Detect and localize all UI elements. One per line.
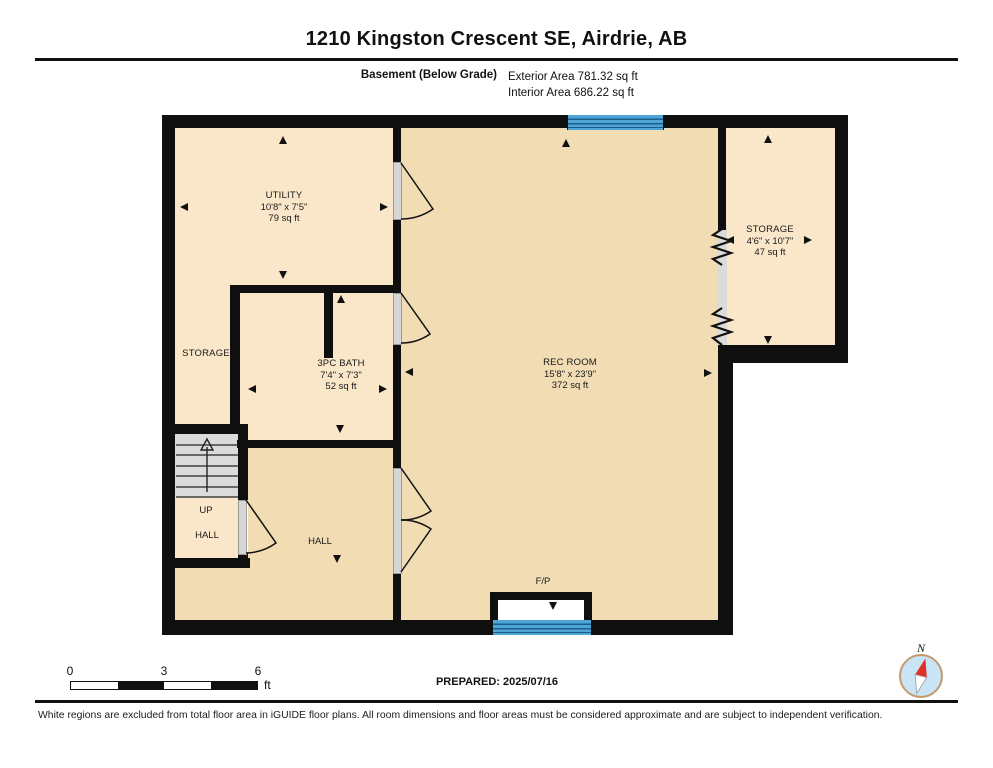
hall-label: HALL [240, 536, 400, 548]
double-door-swing-lower [401, 520, 431, 572]
scale-unit: ft [264, 678, 271, 692]
dim-arrow-right [380, 203, 388, 211]
floor-plan-page: 1210 Kingston Crescent SE, Airdrie, AB B… [0, 0, 993, 768]
dim-arrow-up [279, 136, 287, 144]
dim-arrow-down [333, 555, 341, 563]
double-door-swing-upper [401, 468, 431, 520]
dim-arrow-left [180, 203, 188, 211]
dim-arrow-down [764, 336, 772, 344]
dim-arrow-down [336, 425, 344, 433]
dim-arrow-up [562, 139, 570, 147]
dim-arrow-down [549, 602, 557, 610]
utility-door-swing [401, 163, 433, 219]
utility-label: UTILITY 10'8" x 7'5" 79 sq ft [204, 190, 364, 225]
dim-arrow-left [248, 385, 256, 393]
storage-right-label: STORAGE 4'6" x 10'7" 47 sq ft [690, 224, 850, 259]
compass-north-label: N [916, 641, 926, 655]
scale-tick-3: 3 [161, 664, 168, 678]
fireplace-label: F/P [463, 576, 623, 588]
dim-arrow-down [279, 271, 287, 279]
scale-tick-6: 6 [255, 664, 262, 678]
disclaimer-text: White regions are excluded from total fl… [38, 710, 968, 721]
prepared-date: PREPARED: 2025/07/16 [372, 676, 622, 688]
compass-icon: N [890, 638, 952, 702]
scale-tick-0: 0 [67, 664, 74, 678]
bath-label: 3PC BATH 7'4" x 7'3" 52 sq ft [261, 358, 421, 393]
dim-arrow-right [704, 369, 712, 377]
up-label: UP [126, 505, 286, 517]
scale-bar [70, 681, 258, 690]
dim-arrow-up [764, 135, 772, 143]
dim-arrow-up [337, 295, 345, 303]
footer-divider [35, 700, 958, 703]
rec-room-label: REC ROOM 15'8" x 23'9" 372 sq ft [490, 357, 650, 392]
bath-door-swing [401, 293, 430, 343]
